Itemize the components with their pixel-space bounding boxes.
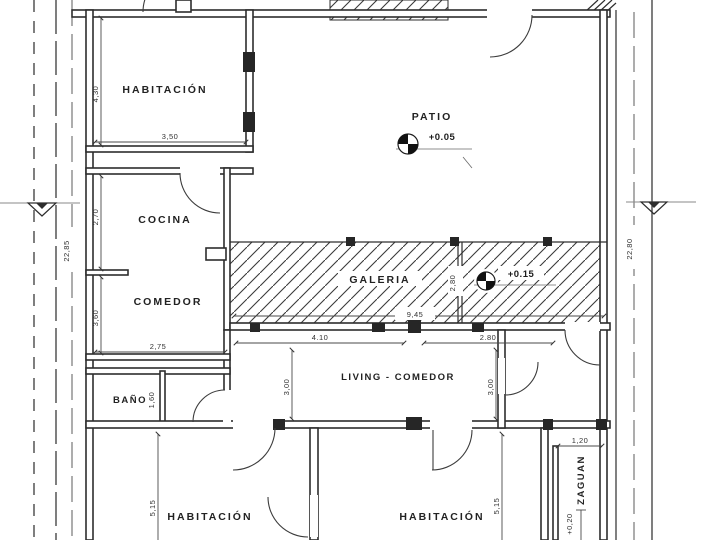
- door-arc-cocina: [180, 173, 220, 213]
- floor-plan-drawing: HABITACIÓN PATIO COCINA COMEDOR GALERIA …: [0, 0, 720, 540]
- dim-habitacion-top-ancho: 3,50: [162, 132, 179, 141]
- room-label-habitacion-der: HABITACIÓN: [399, 510, 484, 523]
- dim-living-ancho-1: 4.10: [312, 333, 329, 342]
- elevation-value-zaguan: +0,20: [565, 513, 574, 534]
- dim-comedor-alto: 3,60: [91, 310, 100, 327]
- door-arc-patio: [490, 15, 532, 57]
- dim-living-alto-izq: 3,00: [282, 379, 291, 396]
- floor-plan-sheet: HABITACIÓN PATIO COCINA COMEDOR GALERIA …: [0, 0, 720, 540]
- door-arc-right-room: [505, 362, 538, 395]
- room-label-patio: PATIO: [412, 111, 453, 123]
- door-arc-galeria-right: [565, 330, 600, 365]
- elevation-value-galeria: +0.15: [508, 269, 535, 280]
- room-label-galeria: GALERIA: [349, 274, 410, 286]
- dim-habitacion-der-alto: 5,15: [492, 498, 501, 515]
- scan-mark: [463, 157, 472, 168]
- door-arc-bedroom-right: [432, 430, 472, 470]
- datum-level-icon-left: [0, 203, 80, 216]
- room-label-habitacion-top: HABITACIÓN: [122, 83, 207, 96]
- elevation-value-patio: +0.05: [429, 132, 456, 143]
- dim-lote-izquierda: 22,85: [62, 240, 71, 261]
- datum-level-icon-right: [626, 202, 696, 214]
- dim-cocina-alto: 2,70: [91, 209, 100, 226]
- door-arc-bedroom-left-side: [268, 497, 308, 537]
- dim-galeria-ancho: 9,45: [407, 310, 424, 319]
- room-label-living: LIVING - COMEDOR: [341, 372, 455, 383]
- dim-bano-alto: 1,60: [147, 392, 156, 409]
- room-label-habitacion-izq: HABITACIÓN: [167, 510, 252, 523]
- room-label-bano: BAÑO: [113, 395, 147, 406]
- dim-habitacion-top-alto: 4,30: [91, 86, 100, 103]
- door-arc-bedroom-left: [233, 428, 275, 470]
- room-label-zaguan: ZAGUAN: [576, 455, 587, 505]
- room-label-comedor: COMEDOR: [134, 296, 203, 308]
- dim-living-ancho-2: 2.80: [480, 333, 497, 342]
- dim-comedor-ancho: 2,75: [150, 342, 167, 351]
- dim-lote-derecha: 22,80: [625, 238, 634, 259]
- dim-zaguan-ancho: 1,20: [572, 436, 589, 445]
- door-arc-bano-hall: [193, 390, 225, 422]
- dim-living-alto-der: 3,00: [486, 379, 495, 396]
- dim-habitacion-izq-alto: 5,15: [148, 500, 157, 517]
- room-label-cocina: COCINA: [138, 214, 191, 226]
- dim-galeria-alto: 2,80: [448, 275, 457, 292]
